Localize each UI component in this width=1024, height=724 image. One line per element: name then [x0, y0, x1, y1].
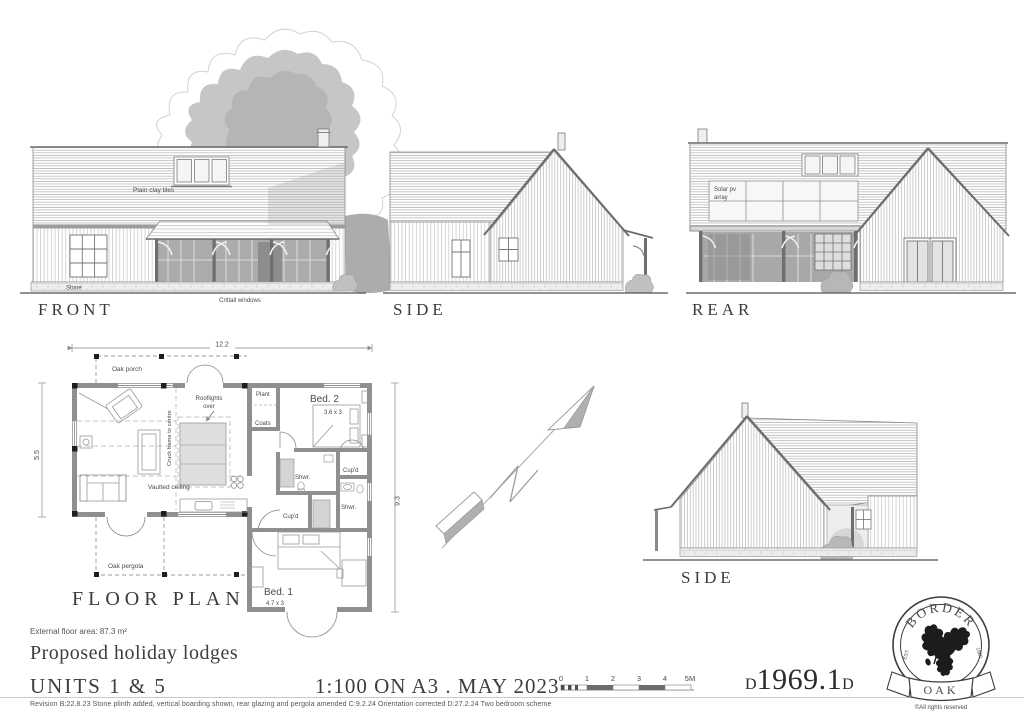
revision-note: Revision B:22.8.23 Stone plinth added, v… — [30, 701, 551, 708]
roof-tile-note: Plain clay tiles — [133, 187, 175, 194]
project-title: Proposed holiday lodges — [30, 642, 238, 665]
side-chimney — [558, 133, 565, 150]
side-lower-title: SIDE — [681, 568, 735, 588]
side-elevation-upper-drawing — [383, 126, 673, 306]
rear-elevation-title: REAR — [692, 300, 753, 320]
crittall-note: Crittall windows — [219, 298, 261, 304]
shower-room-1: Shwr. — [280, 455, 333, 492]
rooflights-arrow — [206, 411, 214, 421]
scale-bar: 0 1 2 3 4 5M — [553, 670, 708, 698]
scale-tick-1: 1 — [585, 674, 589, 683]
north-glyph — [490, 466, 538, 502]
kitchen — [180, 423, 247, 512]
stone-note: Stone — [66, 286, 82, 292]
shwr1-label: Shwr. — [295, 475, 310, 481]
solar-note-line1: Solar pv — [714, 187, 736, 193]
solar-note-line2: array — [714, 195, 728, 201]
scale-tick-3: 3 — [637, 674, 641, 683]
scale-tick-5: 5M — [685, 674, 695, 683]
title-block-rule — [0, 697, 1024, 698]
side2-chimney — [742, 403, 748, 418]
scale-date-label: 1:100 ON A3 . MAY 2023 — [315, 674, 559, 699]
dim-depth-left: 5.5 — [34, 450, 41, 460]
rear-window — [815, 234, 851, 270]
front-dormer-window — [171, 157, 232, 187]
vaulted-note: Vaulted ceiling — [148, 484, 190, 491]
floor-plan-title: FLOOR PLAN — [72, 588, 245, 611]
rear-double-doors — [904, 238, 956, 282]
plant-label: Plant — [256, 392, 270, 398]
front-elevation-drawing: Plain clay tiles — [18, 126, 378, 306]
rear-chimney — [698, 129, 707, 143]
bush — [625, 274, 653, 293]
bed2-size: 3.6 x 3 — [324, 410, 343, 416]
side2-leanto — [654, 507, 671, 551]
rear-elevation-drawing: Solar pv array — [686, 126, 1021, 306]
rear-dormer-window — [802, 154, 858, 176]
window-bands — [73, 382, 371, 613]
rooflights-note-line2: over — [203, 404, 215, 410]
hob — [231, 476, 243, 488]
drawing-sheet: Plain clay tiles — [0, 0, 1024, 724]
border-oak-logo: BORDER EST. 1980 OAK ©All rights reserve… — [884, 592, 1004, 714]
side-gable-window — [499, 238, 518, 261]
oak-pergola-label: Oak pergola — [108, 563, 144, 570]
dim-width: 12.2 — [215, 342, 229, 349]
outer-walls — [72, 383, 372, 612]
bed1-size: 4.7 x 3 — [266, 601, 285, 607]
logo-rights: ©All rights reserved — [915, 704, 967, 711]
cupd2-label: Cup'd — [283, 514, 299, 520]
scale-tick-4: 4 — [663, 674, 667, 683]
side-upper-title: SIDE — [393, 300, 447, 320]
coats-label: Coats — [255, 421, 271, 427]
side-tall-window — [452, 240, 470, 277]
bed2-label: Bed. 2 — [310, 394, 339, 405]
sink — [195, 502, 212, 511]
north-arrow — [428, 378, 608, 563]
scale-tick-0: 0 — [559, 674, 563, 683]
floor-area-note: External floor area: 87.3 m² — [30, 627, 127, 636]
pergola-posts — [94, 572, 239, 577]
cruck-note: Cruck frame to centre — [167, 410, 173, 466]
shwr2-label: Shwr. — [341, 505, 356, 511]
porch-posts — [94, 354, 239, 359]
front-porch — [146, 221, 341, 282]
bed1-room: Bed. 1 4.7 x 3 — [250, 532, 366, 607]
rooflights-note-line1: Rooflights — [196, 396, 223, 402]
cupd1-label: Cup'd — [343, 468, 359, 474]
dwgno-number: 1969.1 — [757, 663, 843, 697]
front-elevation-title: FRONT — [38, 300, 114, 320]
bed1-label: Bed. 1 — [264, 587, 293, 598]
logo-oak-text: OAK — [924, 683, 959, 697]
scale-tick-2: 2 — [611, 674, 615, 683]
dwgno-prefix: D — [745, 676, 757, 694]
bed2-room: Bed. 2 3.6 x 3 — [280, 391, 370, 452]
front-chimney — [317, 129, 331, 147]
front-window — [70, 235, 107, 277]
drawing-number: D1969.1D — [745, 663, 854, 697]
units-label: UNITS 1 & 5 — [30, 674, 167, 699]
dim-depth-right: 9.3 — [395, 496, 402, 506]
dwgno-suffix: D — [842, 676, 854, 694]
side-elevation-lower-drawing — [643, 393, 943, 588]
oak-porch-label: Oak porch — [112, 366, 142, 373]
